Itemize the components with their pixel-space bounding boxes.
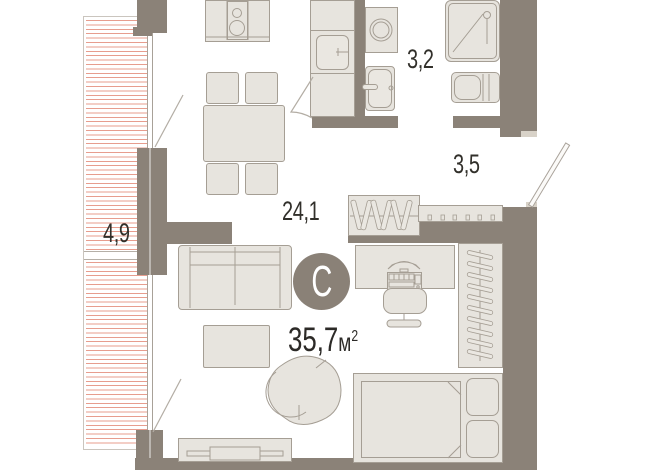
- wardrobe: [458, 243, 503, 368]
- mattress: [361, 381, 461, 458]
- shower-tray: [448, 3, 497, 59]
- wall-stub-living: [163, 222, 232, 244]
- unit-type-badge: С: [293, 253, 350, 310]
- washbasin-lever: [362, 84, 378, 90]
- balcony-door-leaf: [153, 379, 181, 432]
- wall-left-middle: [137, 148, 167, 275]
- area-label-bathroom: 3,2: [407, 46, 434, 73]
- wall-bathroom-south-left: [312, 116, 398, 128]
- desk-chair-base: [387, 314, 421, 327]
- floor-plan: 24,1 3,2 3,5 4,9 С 35,7м2: [0, 0, 654, 470]
- balcony-divider: [84, 251, 137, 260]
- coffee-table: [203, 325, 270, 368]
- pillow: [466, 420, 499, 458]
- wall-hallway-right: [418, 222, 503, 243]
- total-area-unit: м: [338, 329, 351, 357]
- entry-door-jamb-bottom: [526, 202, 537, 207]
- total-area-sup: 2: [351, 328, 358, 345]
- wall-top-left-step: [133, 27, 152, 36]
- dining-chair: [206, 72, 239, 104]
- shoe-rack: [348, 195, 420, 236]
- utility-box: [310, 73, 355, 117]
- coat-hook-rail: [418, 205, 503, 222]
- bathtub-bowl: [454, 75, 481, 100]
- area-label-hallway: 3,5: [453, 151, 480, 178]
- dining-chair: [245, 163, 278, 195]
- wall-bathroom-vertical: [355, 0, 365, 116]
- sofa: [178, 245, 292, 310]
- unit-type-letter: С: [311, 257, 332, 307]
- entry-door-leaf: [529, 143, 570, 207]
- armchair: [266, 356, 341, 424]
- wall-right-top: [500, 0, 537, 137]
- area-label-living: 24,1: [282, 198, 319, 225]
- wall-right: [503, 207, 537, 458]
- balcony-door-leaf: [155, 95, 183, 147]
- dining-table: [203, 105, 285, 162]
- pillow: [466, 378, 499, 416]
- total-area: 35,7м2: [288, 325, 358, 358]
- kitchen-cabinet: [310, 0, 355, 31]
- tv-stand: [178, 438, 292, 462]
- kitchen-sink-basin: [316, 35, 349, 70]
- wall-bathroom-south-right: [453, 116, 500, 128]
- entry-door-jamb-top: [521, 131, 537, 137]
- glazing-over-wall: [149, 430, 151, 458]
- total-area-value: 35,7: [288, 321, 338, 359]
- desk-chair: [383, 288, 427, 314]
- area-label-balcony: 4,9: [103, 220, 130, 247]
- stove: [227, 1, 248, 40]
- washing-machine: [365, 7, 398, 53]
- dining-chair: [206, 163, 239, 195]
- glazing-over-wall: [149, 148, 151, 275]
- dining-chair: [245, 72, 278, 104]
